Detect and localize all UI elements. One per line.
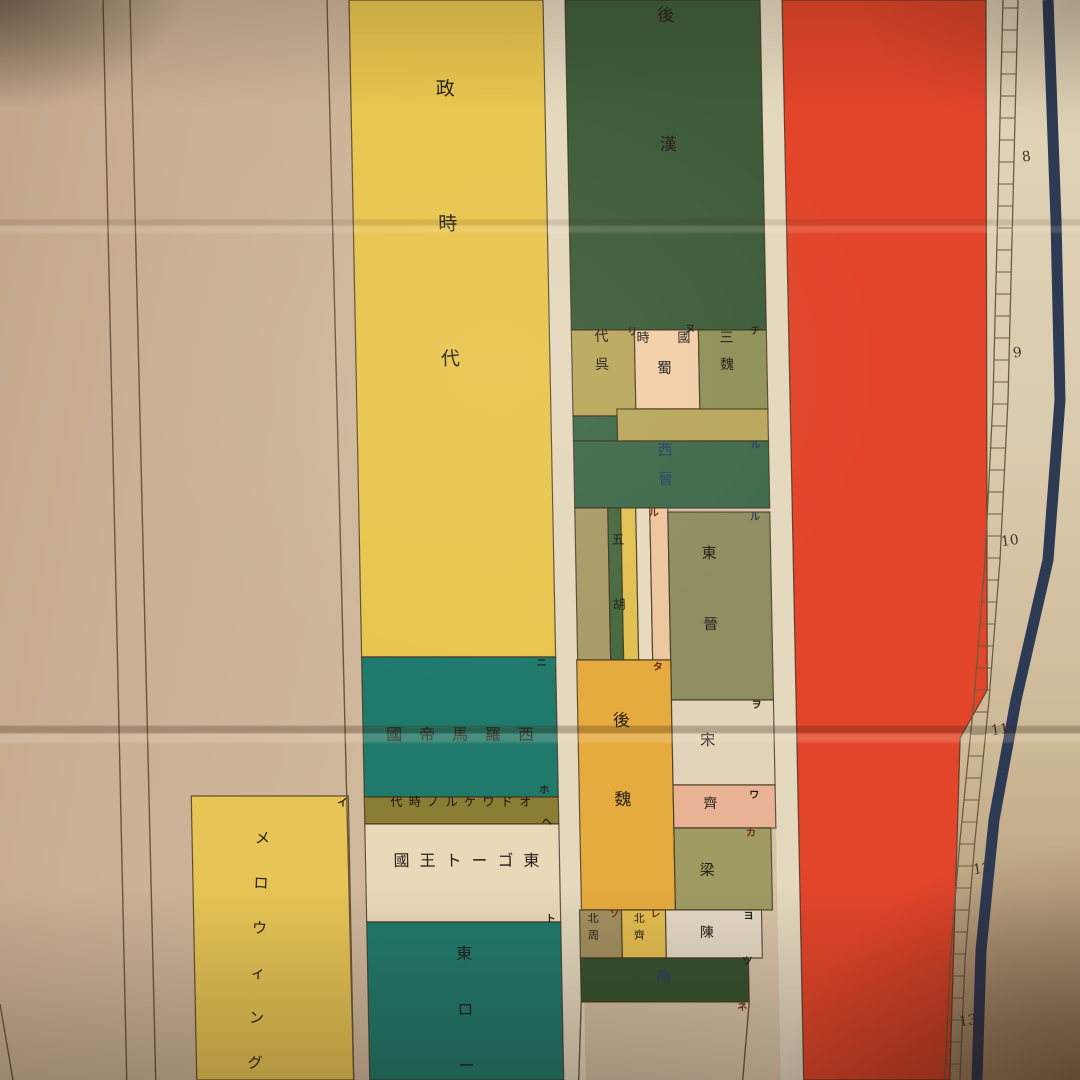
song-block [671, 700, 775, 785]
chen-block [665, 910, 762, 958]
chart-svg [0, 0, 1080, 1080]
navy-divider-line [977, 0, 1060, 1080]
west-jin-notch [573, 416, 617, 441]
chart-photo: 政時代西羅馬帝國オドワケルノ時代東ゴート王國東ロー後漢代呉國時蜀三魏西晉五胡東晉… [0, 0, 1080, 1080]
wu-tail-band [617, 409, 769, 441]
wu-block [571, 330, 636, 416]
later-han-block [565, 0, 766, 330]
east-jin-block [668, 512, 774, 700]
margin-line-2 [130, 0, 156, 1080]
rome-yellow-block [349, 0, 556, 657]
east-rome-block [367, 922, 564, 1080]
odoacer-band [364, 797, 559, 824]
sui-block [580, 958, 749, 1002]
liang-block [674, 828, 773, 910]
north-zhou-block [579, 910, 622, 958]
wei-block [698, 330, 768, 413]
ostrogoth-block [365, 824, 561, 922]
margin-line-1 [103, 0, 127, 1080]
five-hu-stripe-5 [650, 508, 671, 660]
lean-block-group [103, 0, 1007, 1080]
merovingian-block [191, 796, 353, 1080]
five-hu-stripe-1 [575, 508, 611, 660]
corner-stub-line [0, 1004, 13, 1080]
red-column [782, 0, 1007, 1080]
west-jin-block [573, 441, 769, 508]
later-wei-block [577, 660, 676, 910]
west-rome-block [362, 657, 559, 797]
qi-block [673, 785, 776, 828]
tang-right-border [741, 1002, 750, 1080]
shu-block [634, 330, 700, 409]
north-qi-block [621, 910, 666, 958]
